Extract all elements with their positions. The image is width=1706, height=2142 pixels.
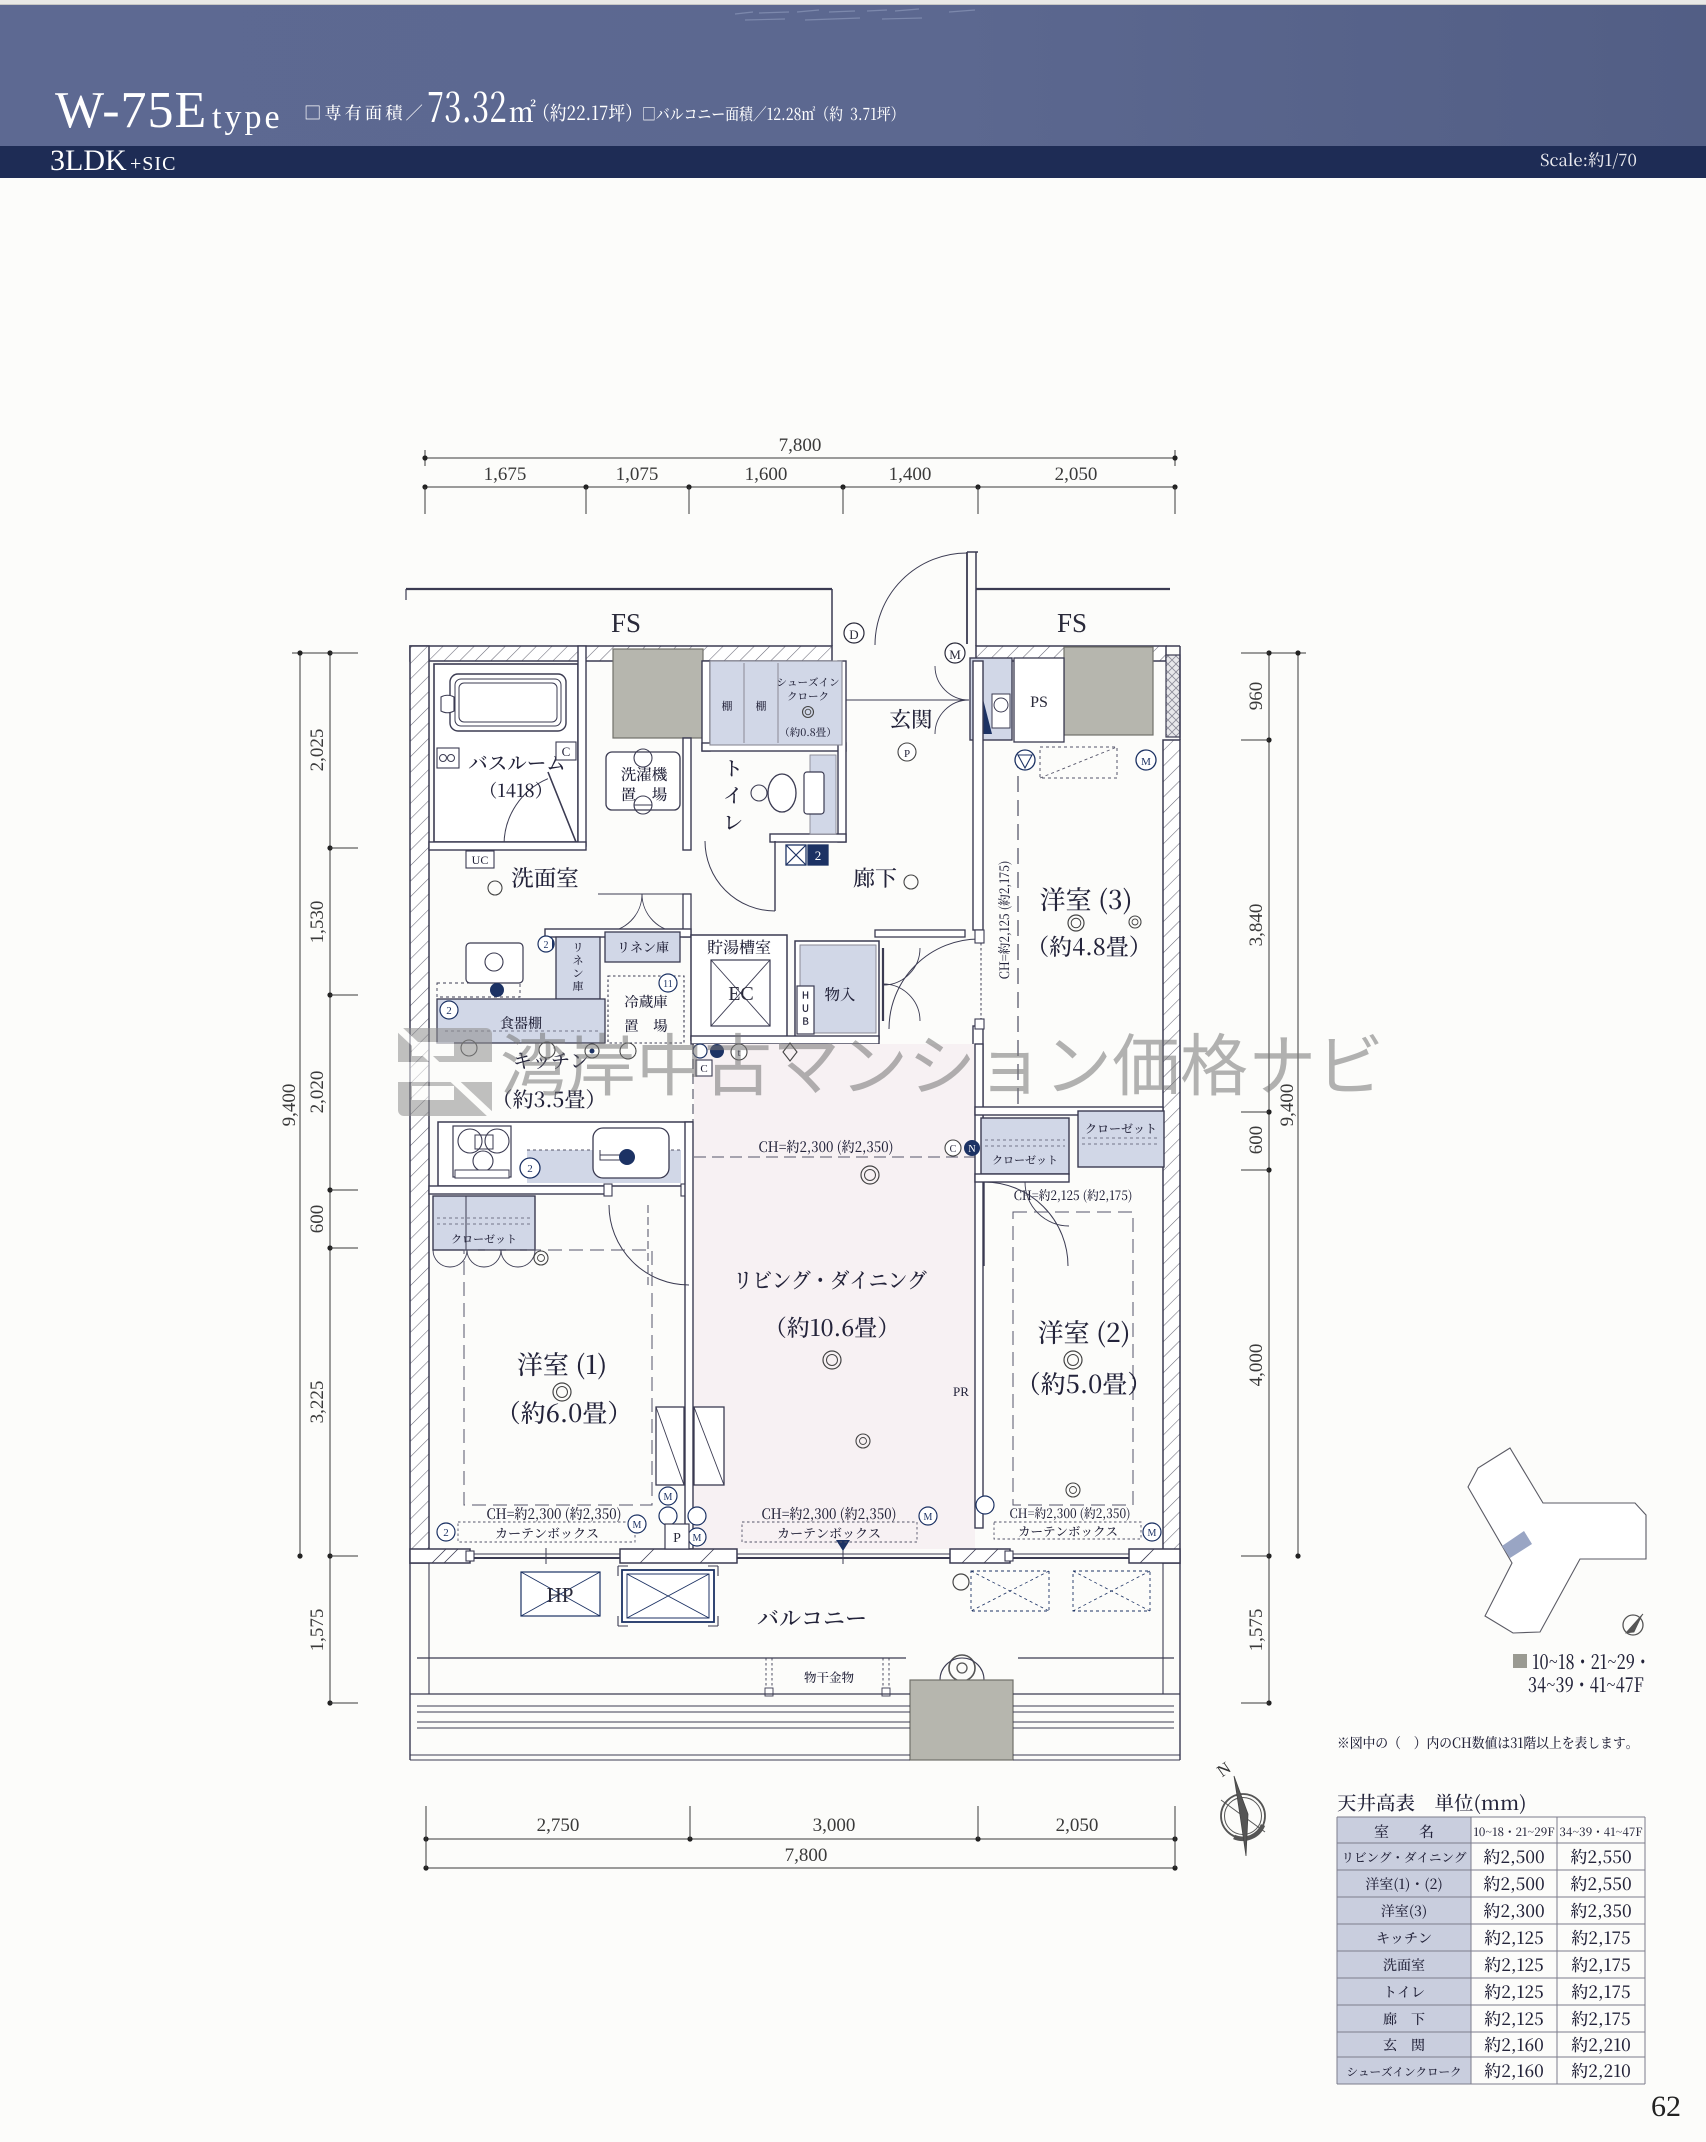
svg-text:1,675: 1,675 — [484, 464, 527, 485]
svg-text:1,530: 1,530 — [307, 901, 328, 944]
svg-text:FS: FS — [1057, 608, 1087, 638]
svg-text:2: 2 — [544, 940, 549, 951]
svg-text:2,025: 2,025 — [307, 729, 328, 772]
svg-text:11: 11 — [663, 979, 673, 990]
svg-text:HP: HP — [547, 1583, 574, 1607]
svg-text:2: 2 — [527, 1163, 533, 1175]
svg-text:1,075: 1,075 — [616, 464, 659, 485]
svg-text:C: C — [700, 1063, 707, 1075]
svg-text:62: 62 — [1651, 2090, 1681, 2123]
svg-text:C: C — [562, 744, 571, 759]
svg-text:P: P — [904, 748, 910, 760]
svg-text:3,225: 3,225 — [307, 1381, 328, 1424]
svg-text:PS: PS — [1030, 694, 1048, 711]
svg-text:2,050: 2,050 — [1056, 1815, 1099, 1836]
svg-text:1,400: 1,400 — [889, 464, 932, 485]
svg-text:600: 600 — [1246, 1126, 1267, 1155]
svg-text:M: M — [1148, 1528, 1157, 1539]
svg-text:UC: UC — [472, 853, 489, 867]
svg-text:EC: EC — [728, 983, 754, 1005]
svg-text:+SIC: +SIC — [130, 153, 176, 175]
svg-text:1,575: 1,575 — [1246, 1609, 1267, 1652]
svg-text:2,020: 2,020 — [307, 1071, 328, 1114]
svg-text:3LDK: 3LDK — [50, 144, 127, 177]
svg-text:C: C — [950, 1144, 957, 1155]
svg-text:D: D — [849, 627, 858, 642]
svg-text:960: 960 — [1246, 682, 1267, 711]
svg-text:M: M — [924, 1512, 933, 1523]
svg-text:1,600: 1,600 — [745, 464, 788, 485]
svg-text:M: M — [633, 1520, 642, 1531]
svg-text:9,400: 9,400 — [279, 1084, 300, 1127]
svg-text:W-75E: W-75E — [55, 82, 207, 139]
svg-text:type: type — [212, 99, 283, 136]
svg-text:2: 2 — [446, 1005, 452, 1017]
svg-text:600: 600 — [307, 1205, 328, 1234]
svg-text:1,575: 1,575 — [307, 1609, 328, 1652]
svg-text:FS: FS — [611, 608, 641, 638]
svg-text:2,050: 2,050 — [1055, 464, 1098, 485]
svg-text:PR: PR — [953, 1384, 969, 1399]
svg-text:2: 2 — [443, 1527, 449, 1539]
svg-text:M: M — [1141, 756, 1151, 768]
svg-text:7,800: 7,800 — [779, 435, 822, 456]
svg-text:M: M — [664, 1492, 673, 1503]
svg-text:4,000: 4,000 — [1246, 1344, 1267, 1387]
svg-text:3,000: 3,000 — [813, 1815, 856, 1836]
svg-text:P: P — [673, 1531, 681, 1546]
svg-text:M: M — [693, 1533, 702, 1544]
svg-text:9,400: 9,400 — [1277, 1084, 1298, 1127]
svg-text:M: M — [949, 647, 961, 662]
svg-text:7,800: 7,800 — [785, 1845, 828, 1866]
svg-text:2,750: 2,750 — [537, 1815, 580, 1836]
svg-text:2: 2 — [815, 848, 822, 863]
svg-text:N: N — [968, 1144, 975, 1155]
svg-text:3,840: 3,840 — [1246, 904, 1267, 947]
